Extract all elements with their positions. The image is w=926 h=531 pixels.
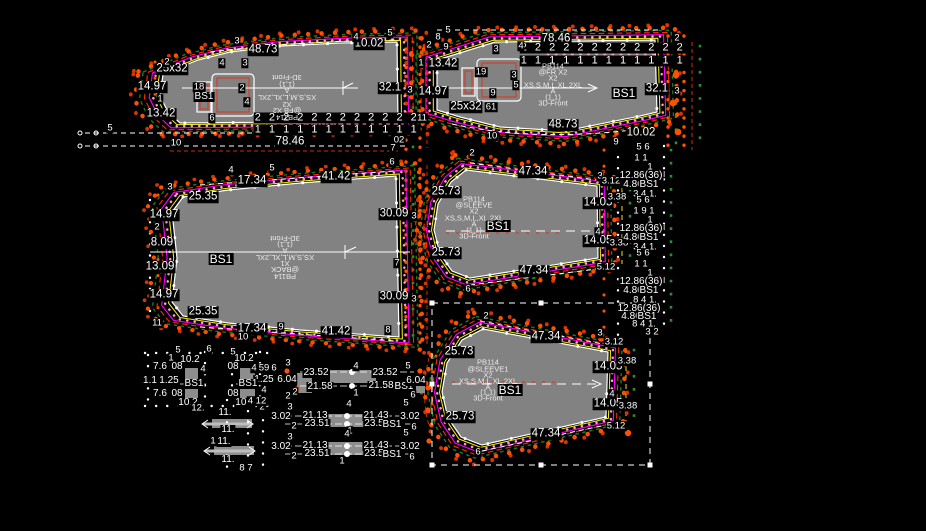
selection-handle[interactable] xyxy=(430,463,435,468)
piece-sleeve1-selected[interactable] xyxy=(421,310,629,465)
selection-handle[interactable] xyxy=(430,301,435,306)
piece-yoke-front-left[interactable] xyxy=(130,28,428,137)
selection-handle[interactable] xyxy=(648,301,653,306)
piece-sleeve[interactable] xyxy=(413,152,618,297)
selection-handle[interactable] xyxy=(430,382,435,387)
selection-handle[interactable] xyxy=(539,301,544,306)
selection-handle[interactable] xyxy=(648,382,653,387)
selection-handle[interactable] xyxy=(648,463,653,468)
selection-handle[interactable] xyxy=(539,463,544,468)
piece-back[interactable] xyxy=(143,160,427,353)
pattern-canvas[interactable]: 48.7310.0225x3214.9713.4232.1378.462 2 2… xyxy=(0,0,926,531)
pattern-svg xyxy=(0,0,926,531)
